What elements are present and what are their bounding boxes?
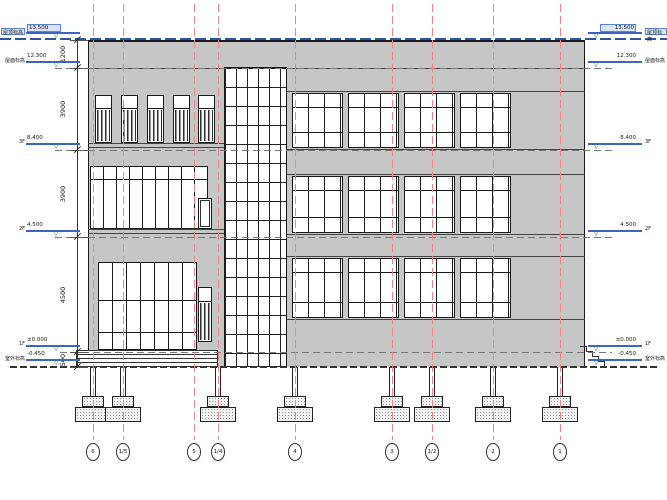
level-value[interactable]: 13.500 [600, 24, 636, 32]
window-paned[interactable] [292, 176, 343, 233]
window-narrow-transom [148, 96, 163, 109]
window-transom-bar [404, 107, 455, 108]
level-value[interactable]: -0.450 [600, 351, 636, 359]
grid-bubble[interactable]: 2 [486, 443, 500, 461]
window-narrow-glazing [175, 110, 188, 141]
level-value[interactable]: 13.500 [27, 24, 61, 32]
facade-line [287, 234, 585, 235]
entry-step-line [76, 358, 218, 359]
level-value[interactable]: ±0.000 [600, 337, 636, 345]
curtain-wall[interactable] [224, 67, 287, 367]
window-transom-bar [292, 272, 343, 273]
level-value[interactable]: 4.500 [600, 222, 636, 230]
level-label: 3F [645, 139, 667, 146]
level-label: 室外标高 [645, 355, 667, 362]
grid-line[interactable] [392, 4, 393, 440]
window-narrow-transom [199, 288, 211, 302]
level-value[interactable]: 12.300 [27, 53, 61, 61]
window-narrow-transom [96, 96, 111, 109]
dimension-text: 4500 [57, 282, 69, 308]
level-label: 室外标高 [1, 355, 25, 362]
grid-bubble[interactable]: 1/2 [425, 443, 439, 461]
window-narrow-glazing [97, 110, 110, 141]
dimension-text: 3900 [57, 181, 69, 207]
level-value[interactable]: 8.400 [600, 135, 636, 143]
window-transom-bar [460, 217, 511, 218]
dimension-text: 3900 [57, 96, 69, 122]
window-paned[interactable] [404, 258, 455, 318]
level-value[interactable]: 4.500 [27, 222, 61, 230]
grid-bubble[interactable]: 3 [385, 443, 399, 461]
facade-line [88, 233, 224, 234]
grid-bubble[interactable]: 1 [553, 443, 567, 461]
level-label: 2F [645, 226, 667, 233]
level-label: 1F [645, 341, 667, 348]
dimension-extension-line [70, 40, 88, 41]
window-transom-bar [404, 272, 455, 273]
ground-floor-dash-line [60, 352, 612, 353]
entry-step-line [76, 362, 218, 363]
dimension-extension-line [70, 150, 88, 151]
window-paned[interactable] [292, 93, 343, 148]
facade-line [88, 143, 224, 144]
grid-line[interactable] [432, 4, 433, 440]
window-narrow-glazing [200, 110, 213, 141]
window-narrow-glazing [123, 110, 136, 141]
window-narrow-transom [174, 96, 189, 109]
grid-line[interactable] [218, 4, 219, 440]
window-transom-bar [292, 132, 343, 133]
window-narrow-glazing [149, 110, 162, 141]
grid-line[interactable] [93, 4, 94, 440]
dimension-extension-line [70, 352, 88, 353]
window-storefront[interactable] [98, 262, 197, 350]
window-storefront[interactable] [90, 166, 208, 229]
level-label: 屋顶标高 [645, 28, 667, 35]
level-dash-line [55, 68, 613, 69]
level-label: 3F [1, 139, 25, 146]
grid-bubble[interactable]: 1/4 [211, 443, 225, 461]
elevation-drawing-canvas: 61/551/4431/2211200390039004500500▽13.50… [0, 0, 667, 500]
window-paned[interactable] [460, 93, 511, 148]
window-paned[interactable] [404, 93, 455, 148]
level-label: 1F [1, 341, 25, 348]
level-label: 屋面标高 [645, 57, 667, 64]
level-value[interactable]: -0.450 [27, 351, 61, 359]
facade-line [88, 229, 224, 230]
window-transom-bar [404, 302, 455, 303]
window-transom-bar [460, 302, 511, 303]
level-label: 屋顶标高 [1, 28, 25, 35]
window-transom-bar [90, 179, 208, 180]
window-paned[interactable] [292, 258, 343, 318]
facade-line [287, 174, 585, 175]
window-paned[interactable] [404, 176, 455, 233]
window-transom-bar [460, 132, 511, 133]
grid-bubble[interactable]: 5 [187, 443, 201, 461]
grid-bubble[interactable]: 4 [288, 443, 302, 461]
window-transom-bar [292, 302, 343, 303]
window-transom-bar [292, 190, 343, 191]
window-transom-bar [404, 190, 455, 191]
grid-line[interactable] [295, 4, 296, 440]
level-value[interactable]: 8.400 [27, 135, 61, 143]
window-paned[interactable] [460, 176, 511, 233]
window-transom-bar [292, 217, 343, 218]
dimension-line [77, 40, 78, 367]
entry-door-panel [200, 200, 210, 227]
top-level-blue-dash-line[interactable] [0, 38, 667, 40]
entry-step-line [76, 354, 218, 355]
level-label: 屋面标高 [1, 57, 25, 64]
window-narrow-transom [199, 96, 214, 109]
window-transom-bar [98, 332, 197, 333]
grid-line[interactable] [194, 4, 195, 440]
window-transom-bar [98, 300, 197, 301]
grid-bubble[interactable]: 6 [86, 443, 100, 461]
level-dash-line [55, 237, 613, 238]
dimension-extension-line [70, 68, 88, 69]
window-transom-bar [460, 107, 511, 108]
level-dash-line [55, 150, 613, 151]
grid-bubble[interactable]: 1/5 [116, 443, 130, 461]
window-narrow-transom [122, 96, 137, 109]
facade-line [287, 256, 585, 257]
level-value[interactable]: 12.300 [600, 53, 636, 61]
grid-line[interactable] [123, 4, 124, 440]
facade-line [88, 147, 224, 148]
window-transom-bar [404, 132, 455, 133]
window-transom-bar [292, 107, 343, 108]
grid-line[interactable] [560, 4, 561, 440]
facade-line [287, 91, 585, 92]
window-paned[interactable] [460, 258, 511, 318]
level-value[interactable]: ±0.000 [27, 337, 61, 345]
grid-line[interactable] [493, 4, 494, 440]
dimension-extension-line [70, 237, 88, 238]
dimension-extension-line [70, 367, 88, 368]
window-narrow-glazing [200, 303, 210, 340]
level-label: 2F [1, 226, 25, 233]
facade-line [287, 319, 585, 320]
window-transom-bar [460, 272, 511, 273]
window-transom-bar [404, 217, 455, 218]
window-transom-bar [460, 190, 511, 191]
